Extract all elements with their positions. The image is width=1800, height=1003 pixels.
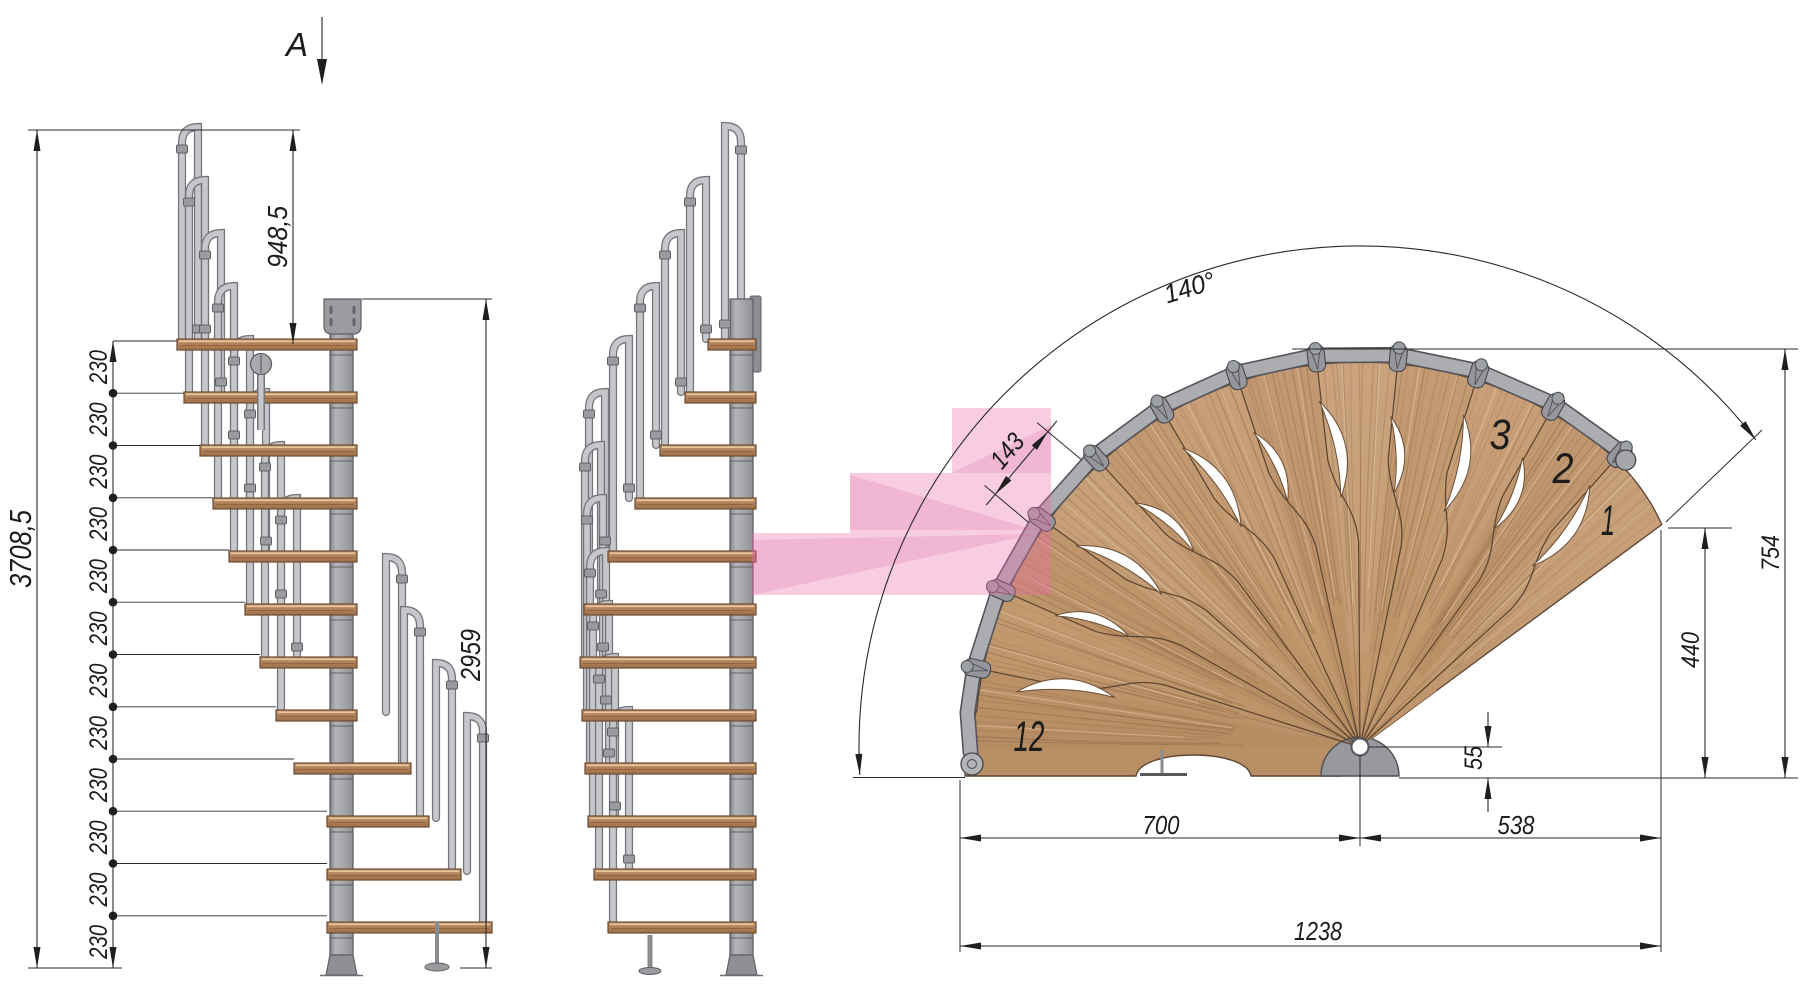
svg-text:3: 3 (1490, 411, 1511, 459)
svg-text:1238: 1238 (1294, 916, 1342, 946)
svg-text:2: 2 (1552, 445, 1574, 493)
svg-text:230: 230 (85, 559, 113, 594)
svg-text:12: 12 (1014, 713, 1045, 761)
svg-text:2959: 2959 (455, 629, 486, 682)
svg-text:230: 230 (85, 611, 113, 646)
svg-text:55: 55 (1460, 746, 1488, 770)
svg-text:230: 230 (85, 507, 113, 542)
svg-text:3708,5: 3708,5 (3, 509, 38, 588)
svg-text:230: 230 (85, 455, 113, 490)
svg-text:230: 230 (85, 873, 113, 908)
svg-text:700: 700 (1143, 810, 1180, 840)
svg-text:230: 230 (85, 768, 113, 803)
svg-text:230: 230 (85, 925, 113, 960)
svg-text:948,5: 948,5 (262, 206, 293, 268)
svg-text:230: 230 (85, 350, 113, 385)
svg-text:A: A (284, 26, 308, 63)
svg-text:1: 1 (1601, 497, 1615, 545)
svg-text:230: 230 (85, 820, 113, 855)
svg-text:440: 440 (1677, 632, 1705, 668)
svg-text:230: 230 (85, 664, 113, 699)
svg-text:230: 230 (85, 716, 113, 751)
svg-text:754: 754 (1757, 535, 1785, 571)
svg-text:230: 230 (85, 402, 113, 437)
svg-text:538: 538 (1498, 810, 1535, 840)
